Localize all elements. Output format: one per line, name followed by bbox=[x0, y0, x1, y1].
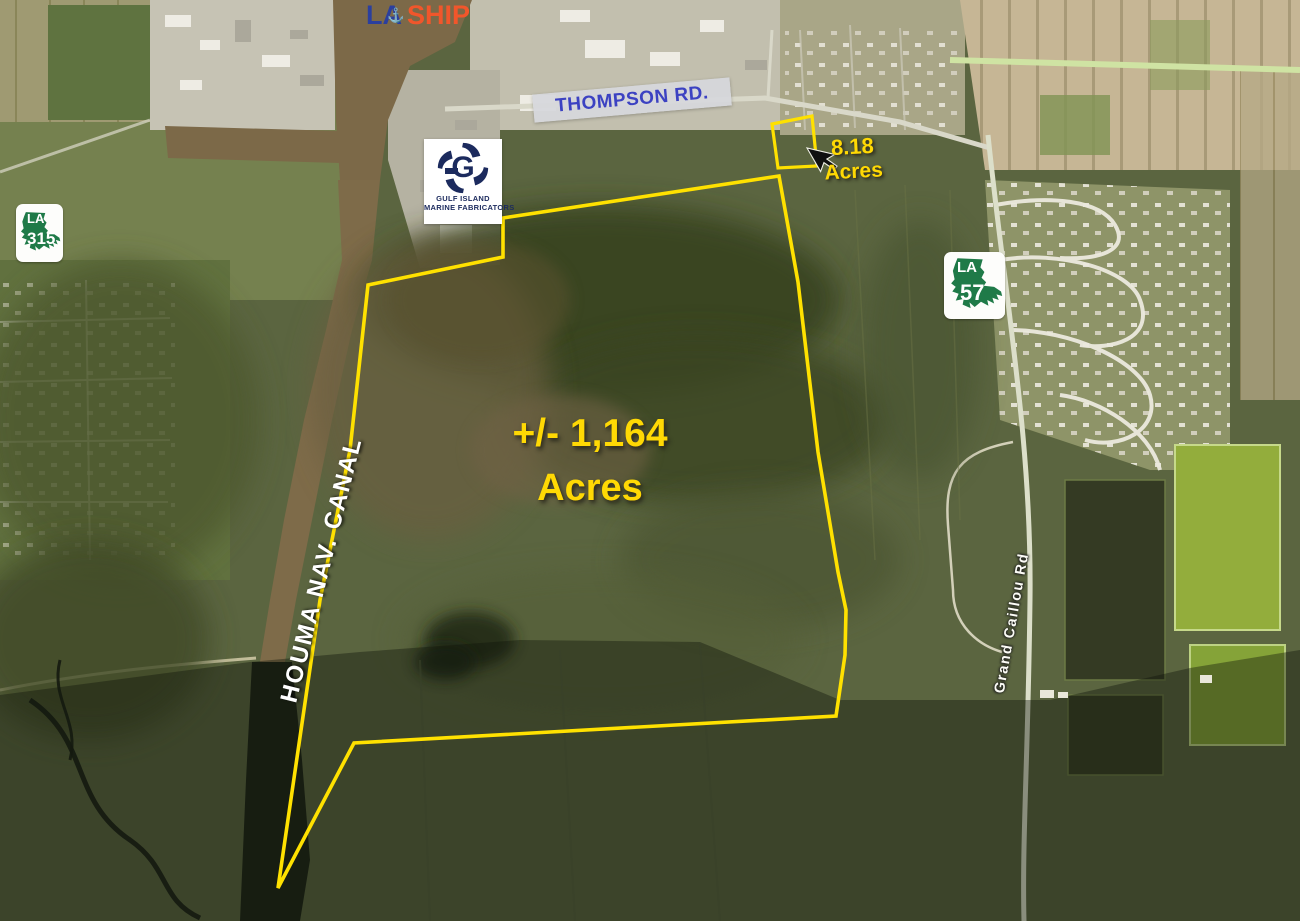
shield-state-label: LA bbox=[27, 211, 44, 226]
main-acreage-label: +/- 1,164 Acres bbox=[495, 414, 685, 507]
la-315-highway-shield: LA 315 bbox=[16, 204, 63, 262]
main-acreage-value: +/- 1,164 bbox=[495, 414, 685, 453]
laship-logo: LA⚓SHIP bbox=[366, 0, 470, 31]
small-acreage-label: 8.18 Acres bbox=[813, 133, 893, 185]
la-57-highway-shield: LA 57 bbox=[944, 252, 1005, 319]
gulf-island-name-line1: GULF ISLAND bbox=[424, 194, 502, 203]
gulf-island-propeller-icon: G bbox=[437, 142, 489, 194]
small-acreage-value: 8.18 bbox=[813, 133, 892, 160]
gulf-island-logo: G GULF ISLAND MARINE FABRICATORS bbox=[424, 139, 502, 224]
gulf-island-name-line2: MARINE FABRICATORS bbox=[424, 203, 502, 212]
laship-ship: SHIP bbox=[407, 0, 470, 30]
shield-state-label: LA bbox=[957, 259, 977, 276]
property-map-graphic: LA⚓SHIP THOMPSON RD. G GULF ISLAND MARIN… bbox=[0, 0, 1300, 921]
anchor-icon: ⚓ bbox=[387, 7, 404, 24]
laship-la: LA⚓ bbox=[366, 0, 402, 31]
small-acreage-unit: Acres bbox=[814, 159, 893, 185]
shield-route-number: 315 bbox=[27, 229, 55, 249]
main-acreage-unit: Acres bbox=[495, 469, 685, 507]
gulf-island-g: G bbox=[437, 146, 489, 190]
shield-route-number: 57 bbox=[960, 280, 984, 306]
